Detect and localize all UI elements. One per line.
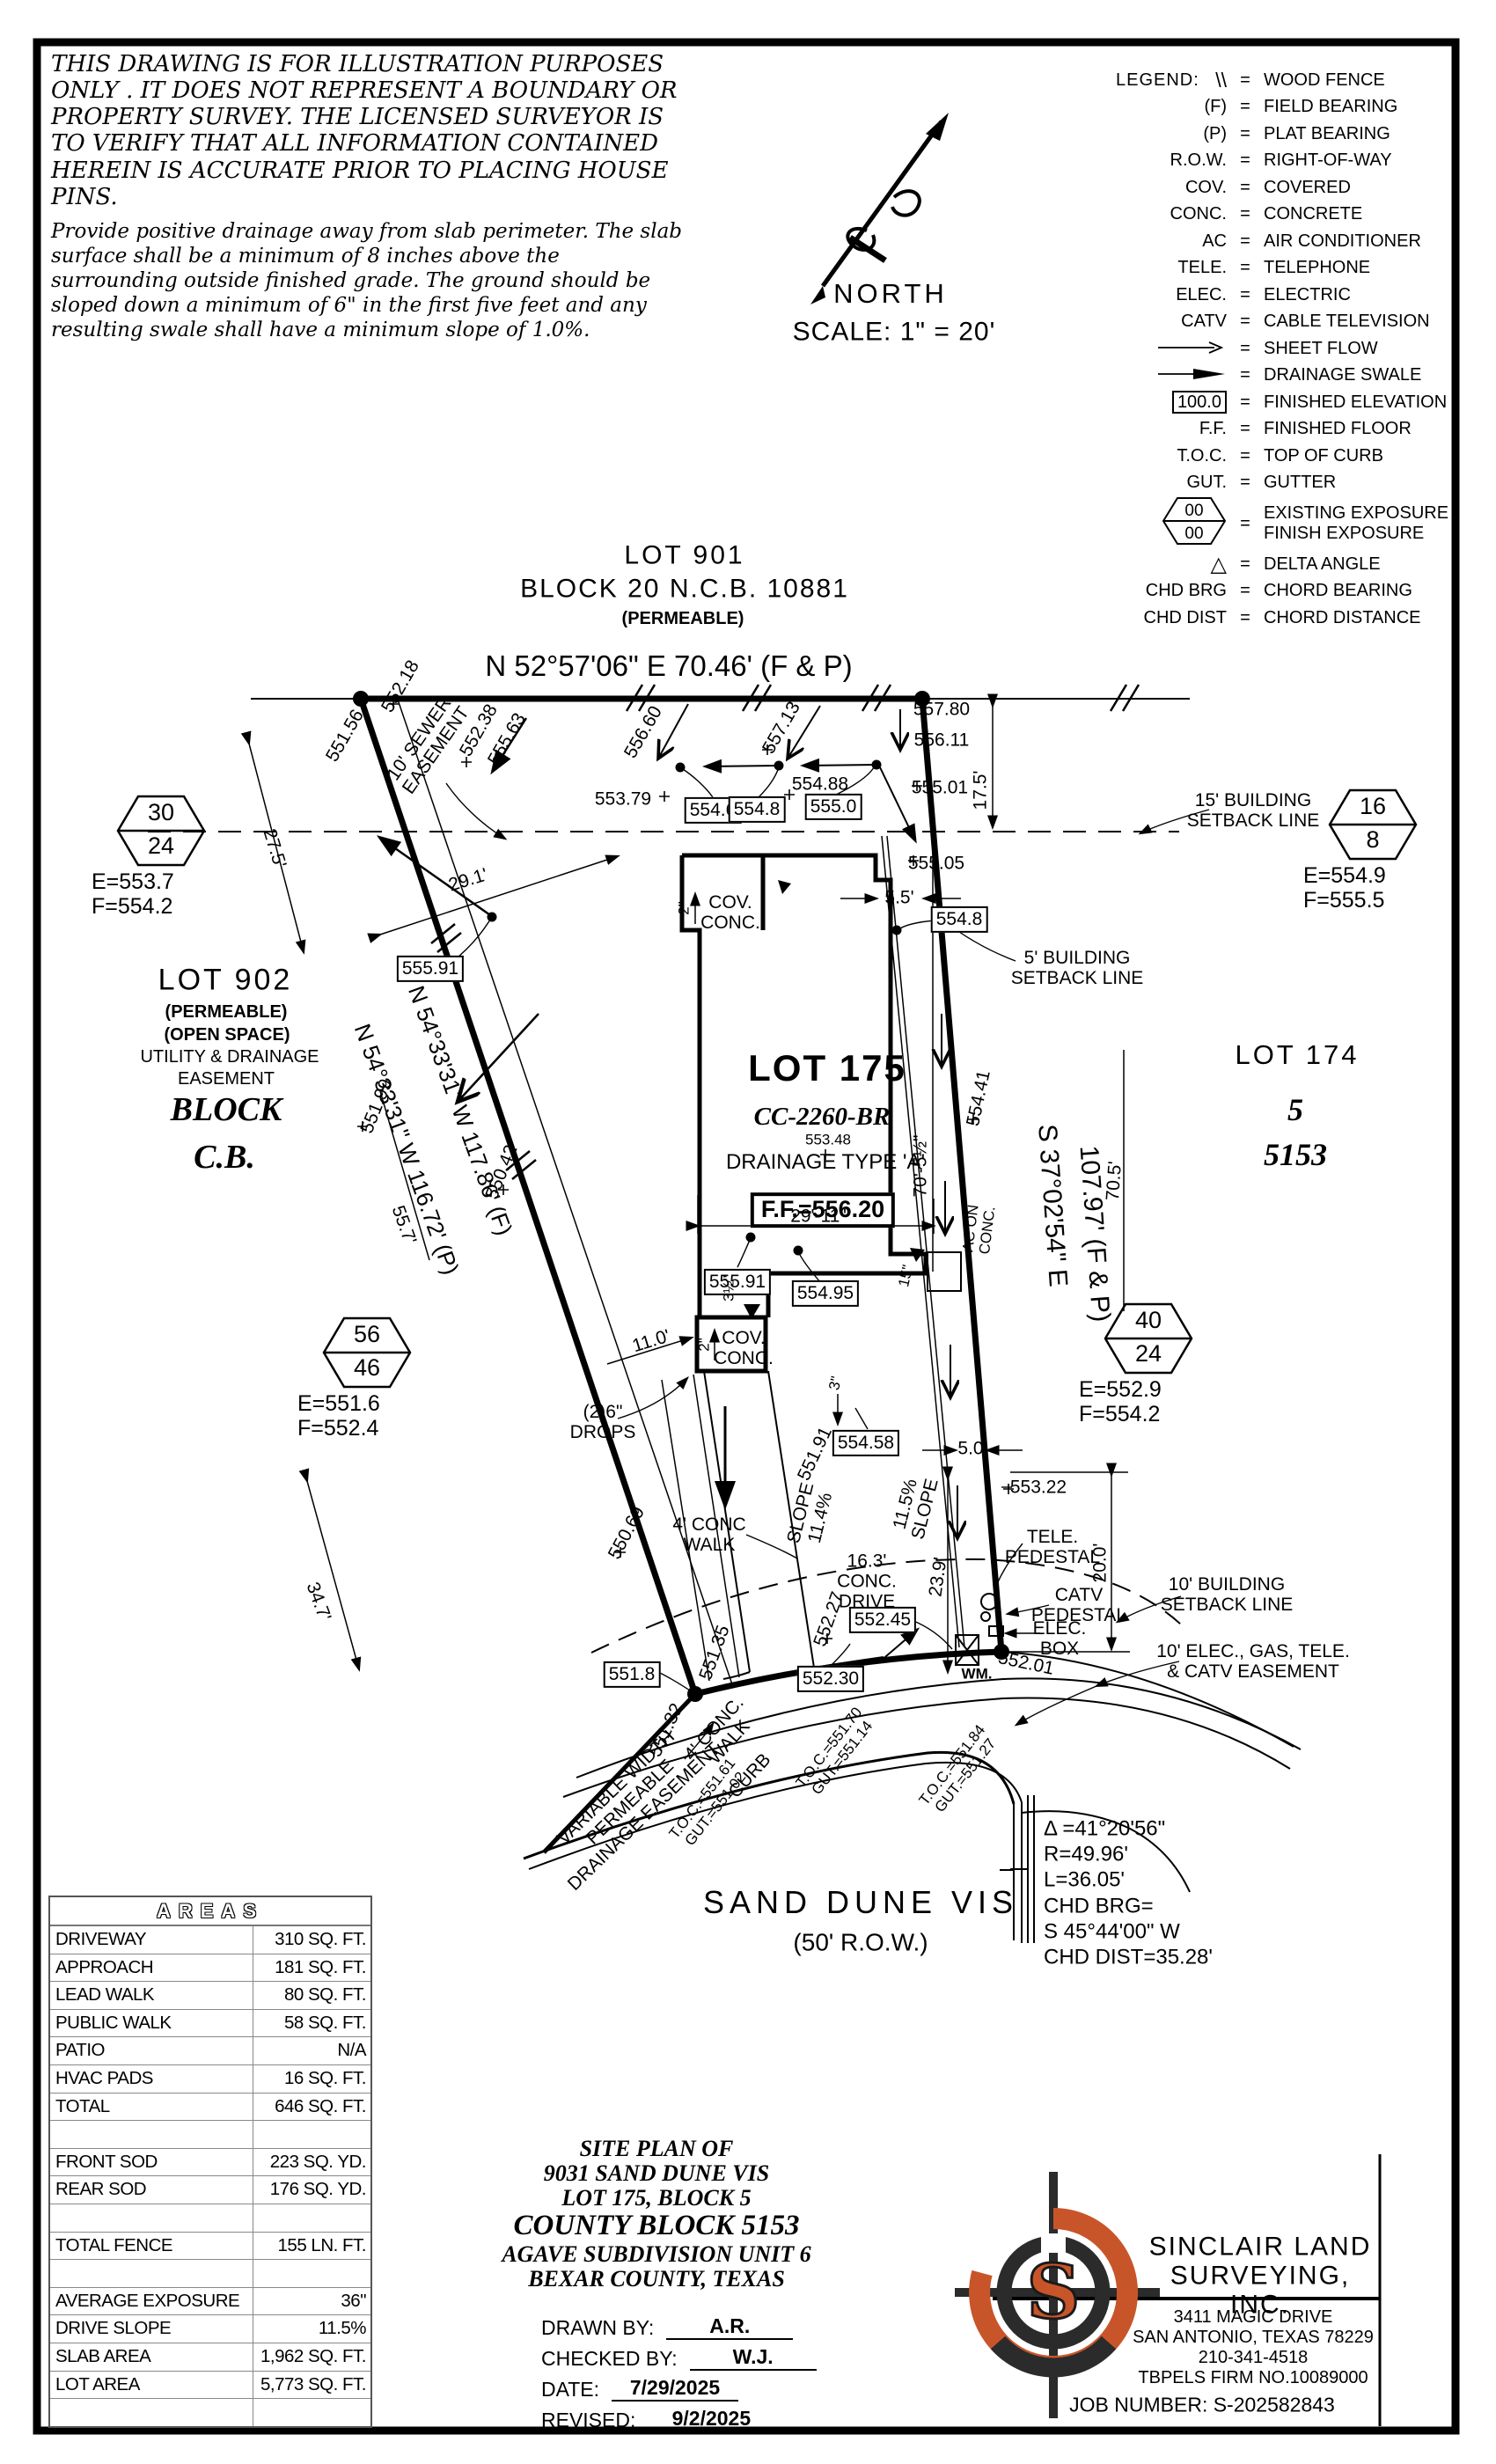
exposure-ef-values: E=553.7 F=554.2 xyxy=(92,869,209,919)
finished-elev-box: 554.8 xyxy=(729,796,786,823)
areas-row-value xyxy=(253,2121,370,2148)
areas-row-label: PUBLIC WALK xyxy=(50,2010,253,2037)
exposure-marker-16-8: 16 8 E=554.9 F=555.5 xyxy=(1324,788,1421,913)
title-block: SITE PLAN OF9031 SAND DUNE VISLOT 175, B… xyxy=(502,2137,810,2292)
exposure-existing: 16 xyxy=(1324,793,1421,820)
areas-row-value: 310 SQ. FT. xyxy=(253,1926,370,1954)
dim-3half-in: 3½" xyxy=(722,1275,738,1302)
areas-row-value: 36" xyxy=(253,2288,370,2315)
drainage-swale-icon xyxy=(1158,368,1227,380)
scale-label: SCALE: 1" = 20' xyxy=(793,318,996,347)
spot-elev: 555.01 xyxy=(912,777,968,797)
legend-description: CABLE TELEVISION xyxy=(1264,312,1430,332)
legend-row: = SHEET FLOW xyxy=(1116,335,1455,363)
legend-description: WOOD FENCE xyxy=(1264,70,1385,91)
areas-table-row: DRIVE SLOPE 11.5% xyxy=(50,2315,370,2343)
dim-5-0: 5.0' xyxy=(957,1438,986,1458)
legend-equals: = xyxy=(1227,70,1264,91)
credit-row: REVISED: 9/2/2025 xyxy=(541,2407,817,2432)
legend-row: TELE. = TELEPHONE xyxy=(1116,255,1455,282)
lot-175-spot-elev: 553.48 xyxy=(805,1133,851,1149)
setback-5-label: 5' BUILDING SETBACK LINE xyxy=(1011,948,1144,988)
legend-symbol xyxy=(1116,339,1227,359)
lot-174-label: LOT 174 xyxy=(1235,1040,1359,1070)
title-block-line: BEXAR COUNTY, TEXAS xyxy=(502,2267,810,2292)
sheet-flow-icon xyxy=(1158,341,1227,354)
legend-symbol: CATV xyxy=(1116,312,1227,332)
areas-row-label: TOTAL xyxy=(50,2094,253,2121)
disclaimer-paragraph-1: THIS DRAWING IS FOR ILLUSTRATION PURPOSE… xyxy=(51,51,685,210)
title-block-lines: SITE PLAN OF9031 SAND DUNE VISLOT 175, B… xyxy=(502,2137,810,2292)
curve-data-line: CHD BRG= xyxy=(1044,1893,1213,1918)
company-name: SINCLAIR LAND SURVEYING, INC. xyxy=(1142,2233,1378,2320)
legend-row: COV. = COVERED xyxy=(1116,174,1455,202)
legend-symbol: TELE. xyxy=(1116,258,1227,278)
legend-description: ELECTRIC xyxy=(1264,285,1351,305)
finished-elev-box: 554.95 xyxy=(792,1280,859,1307)
job-number: JOB NUMBER: S-202582843 xyxy=(1069,2394,1335,2417)
legend-equals: = xyxy=(1227,204,1264,224)
exposure-finish: 24 xyxy=(1100,1340,1197,1368)
legend-row: R.O.W. = RIGHT-OF-WAY xyxy=(1116,148,1455,175)
curve-data: Δ =41°20'56"R=49.96'L=36.05'CHD BRG=S 45… xyxy=(1044,1739,1213,1997)
north-arrow-icon xyxy=(810,113,949,304)
credit-label: DRAWN BY: xyxy=(541,2316,654,2340)
street-name: SAND DUNE VIS xyxy=(703,1885,1018,1920)
dim-17-5: 17.5' xyxy=(970,771,990,810)
finished-elev-box: 555.0 xyxy=(805,794,862,820)
credit-value: A.R. xyxy=(666,2314,793,2340)
areas-row-label: REAR SOD xyxy=(50,2176,253,2204)
tele-pedestal-label: TELE. PEDESTAL xyxy=(1005,1527,1100,1567)
areas-table-row: TOTAL FENCE 155 LN. FT. xyxy=(50,2233,370,2261)
legend-description: GUTTER xyxy=(1264,473,1336,493)
legend-symbol: F.F. xyxy=(1116,419,1227,439)
legend-description: FINISHED FLOOR xyxy=(1264,419,1412,439)
legend-row: AC = AIR CONDITIONER xyxy=(1116,228,1455,255)
legend-row: 100.0 = FINISHED ELEVATION xyxy=(1116,389,1455,416)
areas-row-label: AVERAGE EXPOSURE xyxy=(50,2288,253,2315)
areas-table-row xyxy=(50,2204,370,2233)
areas-table-row: AVERAGE EXPOSURE 36" xyxy=(50,2288,370,2316)
legend-row: (P) = PLAT BEARING xyxy=(1116,121,1455,148)
title-block-line: 9031 SAND DUNE VIS xyxy=(502,2161,810,2186)
areas-row-value xyxy=(253,2204,370,2232)
conc-walk-label-a: 4' CONC WALK xyxy=(672,1514,745,1555)
legend-symbol: (P) xyxy=(1116,124,1227,144)
legend-symbol: CHD DIST xyxy=(1116,608,1227,628)
legend-equals: = xyxy=(1227,392,1264,413)
exposure-marker-30-24: 30 24 E=553.7 F=554.2 xyxy=(113,794,209,919)
areas-row-value xyxy=(253,2260,370,2287)
areas-table-row: DRIVEWAY 310 SQ. FT. xyxy=(50,1926,370,1954)
north-label: NORTH xyxy=(833,279,948,309)
spot-elev: 555.05 xyxy=(908,853,964,873)
spot-elev: 557.80 xyxy=(913,699,970,719)
areas-table-row: PATIO N/A xyxy=(50,2037,370,2065)
areas-table-title: AREAS xyxy=(50,1897,370,1926)
legend-equals: = xyxy=(1227,124,1264,144)
areas-row-label xyxy=(50,2204,253,2232)
legend: LEGEND: \\ = WOOD FENCE xyxy=(1116,67,1455,632)
dim-2in-a: 2" xyxy=(677,901,693,915)
credits-block: DRAWN BY: A.R. CHECKED BY: W.J. DATE: 7/… xyxy=(541,2314,817,2438)
credit-value: 7/29/2025 xyxy=(612,2376,738,2402)
exposure-ef-values: E=551.6 F=552.4 xyxy=(297,1391,415,1441)
areas-table-row: SLAB AREA 1,962 SQ. FT. xyxy=(50,2343,370,2372)
lot-902-label: LOT 902 xyxy=(158,964,293,996)
dim-70-5: 70.5' xyxy=(1103,1161,1126,1201)
legend-description: RIGHT-OF-WAY xyxy=(1264,150,1392,171)
legend-symbol: CONC. xyxy=(1116,204,1227,224)
legend-equals: = xyxy=(1227,339,1264,359)
lot-174-block: 5 xyxy=(1287,1093,1303,1128)
legend-equals: = xyxy=(1227,312,1264,332)
areas-row-label: PATIO xyxy=(50,2037,253,2064)
areas-row-label xyxy=(50,2121,253,2148)
areas-row-label: DRIVEWAY xyxy=(50,1926,253,1954)
spot-elev: 554.88 xyxy=(792,774,848,794)
legend-symbol: R.O.W. xyxy=(1116,150,1227,171)
legend-equals: = xyxy=(1227,178,1264,198)
legend-row: = DRAINAGE SWALE xyxy=(1116,363,1455,390)
legend-row: (F) = FIELD BEARING xyxy=(1116,94,1455,121)
areas-table-row xyxy=(50,2399,370,2426)
title-block-line: AGAVE SUBDIVISION UNIT 6 xyxy=(502,2242,810,2267)
legend-symbol: 00 00 xyxy=(1116,496,1227,551)
areas-row-value: 80 SQ. FT. xyxy=(253,1982,370,2009)
legend-symbol: T.O.C. xyxy=(1116,446,1227,466)
credit-row: CHECKED BY: W.J. xyxy=(541,2345,817,2371)
areas-table-row: LOT AREA 5,773 SQ. FT. xyxy=(50,2372,370,2400)
areas-table-row: PUBLIC WALK 58 SQ. FT. xyxy=(50,2010,370,2038)
title-block-line: COUNTY BLOCK 5153 xyxy=(502,2211,810,2242)
credit-value: W.J. xyxy=(690,2345,817,2371)
legend-description: EXISTING EXPOSURE FINISH EXPOSURE xyxy=(1264,503,1448,544)
exposure-marker-40-24: 40 24 E=552.9 F=554.2 xyxy=(1100,1302,1197,1426)
covered-concrete-lower: COV. CONC. xyxy=(714,1328,774,1368)
legend-row: CHD BRG = CHORD BEARING xyxy=(1116,578,1455,605)
curve-data-line: L=36.05' xyxy=(1044,1867,1213,1893)
lot-901-permeable: (PERMEABLE) xyxy=(622,609,744,628)
legend-row: T.O.C. = TOP OF CURB xyxy=(1116,443,1455,470)
legend-row: CONC. = CONCRETE xyxy=(1116,202,1455,229)
areas-table-row: LEAD WALK 80 SQ. FT. xyxy=(50,1982,370,2010)
credit-rows: DRAWN BY: A.R. CHECKED BY: W.J. DATE: 7/… xyxy=(541,2314,817,2432)
areas-row-value xyxy=(253,2399,370,2426)
legend-equals: = xyxy=(1227,231,1264,252)
areas-table-row xyxy=(50,2121,370,2149)
curve-data-line: S 45°44'00" W xyxy=(1044,1919,1213,1945)
areas-row-label: TOTAL FENCE xyxy=(50,2233,253,2260)
areas-row-label xyxy=(50,2260,253,2287)
finished-elev-box: 555.91 xyxy=(397,956,464,982)
lot-902-block-cb: BLOCK xyxy=(171,1092,282,1129)
water-meter-label: WM. xyxy=(962,1667,993,1683)
legend-row: GUT. = GUTTER xyxy=(1116,470,1455,497)
legend-symbol: AC xyxy=(1116,231,1227,252)
setback-10-label: 10' BUILDING SETBACK LINE xyxy=(1161,1574,1294,1615)
areas-row-label: FRONT SOD xyxy=(50,2149,253,2176)
svg-text:00: 00 xyxy=(1184,502,1203,520)
spot-elev: 556.11 xyxy=(914,730,970,750)
lot-175-drainage-type: DRAINAGE TYPE 'A' xyxy=(726,1151,925,1174)
legend-description: COVERED xyxy=(1264,178,1351,198)
lot-902-cb: C.B. xyxy=(194,1140,255,1177)
lot-902-utility: UTILITY & DRAINAGE xyxy=(140,1047,319,1067)
areas-row-value: 176 SQ. YD. xyxy=(253,2176,370,2204)
legend-symbol: ELEC. xyxy=(1116,285,1227,305)
exposure-finish: 24 xyxy=(113,832,209,860)
easement-10-label: 10' ELEC., GAS, TELE. & CATV EASEMENT xyxy=(1156,1641,1350,1682)
exposure-hex-icon: 00 00 xyxy=(1162,496,1227,546)
lot-902-open-space: (OPEN SPACE) xyxy=(165,1025,290,1045)
finished-elev-box: 551.8 xyxy=(604,1661,661,1688)
areas-row-label: LOT AREA xyxy=(50,2372,253,2399)
areas-row-value: 11.5% xyxy=(253,2315,370,2343)
elec-box-label: ELEC. BOX xyxy=(1033,1618,1087,1659)
legend-title: LEGEND: xyxy=(1116,70,1199,91)
areas-row-value: 58 SQ. FT. xyxy=(253,2010,370,2037)
legend-row: CATV = CABLE TELEVISION xyxy=(1116,309,1455,336)
areas-row-value: 223 SQ. YD. xyxy=(253,2149,370,2176)
legend-symbol: 100.0 xyxy=(1116,392,1227,413)
areas-row-value: 16 SQ. FT. xyxy=(253,2065,370,2093)
legend-description: CONCRETE xyxy=(1264,204,1362,224)
legend-equals: = xyxy=(1227,446,1264,466)
title-block-line: SITE PLAN OF xyxy=(502,2137,810,2161)
legend-symbol: △ xyxy=(1116,552,1227,577)
areas-row-label xyxy=(50,2399,253,2426)
setback-15-label: 15' BUILDING SETBACK LINE xyxy=(1187,790,1320,831)
exposure-existing: 56 xyxy=(319,1321,415,1348)
areas-table-row xyxy=(50,2260,370,2288)
legend-equals: = xyxy=(1227,258,1264,278)
areas-row-label: LEAD WALK xyxy=(50,1982,253,2009)
spot-elev: 553.79 xyxy=(595,788,651,809)
areas-table-row: APPROACH 181 SQ. FT. xyxy=(50,1954,370,1983)
company-logo: S xyxy=(955,2172,1160,2418)
legend-row: F.F. = FINISHED FLOOR xyxy=(1116,416,1455,444)
legend-equals: = xyxy=(1227,150,1264,171)
legend-equals: = xyxy=(1227,514,1264,534)
areas-row-value: 1,962 SQ. FT. xyxy=(253,2343,370,2371)
legend-symbol: (F) xyxy=(1116,97,1227,117)
areas-row-value: 181 SQ. FT. xyxy=(253,1954,370,1982)
finished-elev-box: 554.58 xyxy=(832,1430,899,1456)
areas-table-row: HVAC PADS 16 SQ. FT. xyxy=(50,2065,370,2094)
areas-table: AREAS DRIVEWAY 310 SQ. FT. APPROACH 181 … xyxy=(48,1896,372,2428)
legend-rows: \\ = WOOD FENCE (F) xyxy=(1116,67,1455,632)
lot-902-permeable: (PERMEABLE) xyxy=(165,1002,288,1022)
disclaimer-paragraph-2: Provide positive drainage away from slab… xyxy=(51,219,685,342)
areas-row-value: 5,773 SQ. FT. xyxy=(253,2372,370,2399)
legend-description: PLAT BEARING xyxy=(1264,124,1390,144)
dim-29-11: 29'-11" xyxy=(790,1206,847,1226)
legend-description: SHEET FLOW xyxy=(1264,339,1378,359)
legend-description: TELEPHONE xyxy=(1264,258,1370,278)
legend-equals: = xyxy=(1227,365,1264,385)
lot-901-label: LOT 901 xyxy=(624,541,744,570)
areas-row-label: DRIVE SLOPE xyxy=(50,2315,253,2343)
exposure-ef-values: E=552.9 F=554.2 xyxy=(1079,1377,1197,1426)
lot-902-easement: EASEMENT xyxy=(178,1069,275,1089)
exposure-marker-56-46: 56 46 E=551.6 F=552.4 xyxy=(319,1316,415,1441)
site-plan-sheet: S THIS DRAWING IS FOR ILLUSTRATION PURPO… xyxy=(0,0,1496,2464)
spot-elev: 553.22 xyxy=(1010,1477,1067,1497)
legend-description: FINISHED ELEVATION xyxy=(1264,392,1447,413)
legend-row: 00 00 = EXISTING EXPOSURE FINISH EXPOSUR… xyxy=(1116,496,1455,551)
areas-row-value: N/A xyxy=(253,2037,370,2064)
lot-174-county-block: 5153 xyxy=(1264,1138,1327,1173)
curve-data-lines: Δ =41°20'56"R=49.96'L=36.05'CHD BRG=S 45… xyxy=(1044,1764,1213,1970)
areas-table-row: FRONT SOD 223 SQ. YD. xyxy=(50,2149,370,2177)
credit-label: CHECKED BY: xyxy=(541,2347,678,2371)
svg-text:S: S xyxy=(1027,2248,1081,2336)
legend-description: FIELD BEARING xyxy=(1264,97,1397,117)
legend-equals: = xyxy=(1227,97,1264,117)
legend-equals: = xyxy=(1227,473,1264,493)
legend-description: DRAINAGE SWALE xyxy=(1264,365,1421,385)
legend-equals: = xyxy=(1227,554,1264,575)
flow-arrows xyxy=(380,704,957,1661)
title-block-line: LOT 175, BLOCK 5 xyxy=(502,2186,810,2211)
disclaimer-note: THIS DRAWING IS FOR ILLUSTRATION PURPOSE… xyxy=(51,51,685,342)
credit-row: DRAWN BY: A.R. xyxy=(541,2314,817,2340)
legend-symbol: COV. xyxy=(1116,178,1227,198)
dim-70-5half: 70'-5½" xyxy=(910,1134,930,1197)
legend-description: CHORD BEARING xyxy=(1264,581,1412,601)
areas-row-value: 646 SQ. FT. xyxy=(253,2094,370,2121)
legend-row: ELEC. = ELECTRIC xyxy=(1116,282,1455,309)
exposure-existing: 30 xyxy=(113,799,209,826)
finished-elev-box: 554.8 xyxy=(931,906,988,933)
credit-label: REVISED: xyxy=(541,2409,635,2432)
legend-symbol: GUT. xyxy=(1116,473,1227,493)
exposure-finish: 8 xyxy=(1324,826,1421,854)
legend-row: △ = DELTA ANGLE xyxy=(1116,551,1455,578)
svg-text:00: 00 xyxy=(1184,524,1203,543)
legend-equals: = xyxy=(1227,608,1264,628)
curve-data-line: R=49.96' xyxy=(1044,1842,1213,1867)
areas-table-rows: DRIVEWAY 310 SQ. FT. APPROACH 181 SQ. FT… xyxy=(50,1926,370,2426)
company-address: 3411 MAGIC DRIVE SAN ANTONIO, TEXAS 7822… xyxy=(1133,2307,1374,2388)
bearing-north-line: N 52°57'06" E 70.46' (F & P) xyxy=(485,650,852,682)
exposure-ef-values: E=554.9 F=555.5 xyxy=(1303,863,1421,913)
covered-concrete-upper: COV. CONC. xyxy=(700,892,760,933)
legend-equals: = xyxy=(1227,419,1264,439)
lot-901-block-label: BLOCK 20 N.C.B. 10881 xyxy=(520,575,849,604)
legend-description: DELTA ANGLE xyxy=(1264,554,1381,575)
lot-175-plan-code: CC-2260-BR xyxy=(754,1104,891,1132)
curve-data-line: CHD DIST=35.28' xyxy=(1044,1945,1213,1970)
dim-2in-b: 2" xyxy=(697,1338,714,1352)
areas-row-value: 155 LN. FT. xyxy=(253,2233,370,2260)
curve-data-line: Δ =41°20'56" xyxy=(1044,1815,1213,1841)
ac-on-concrete-label: AC ON CONC. xyxy=(960,1204,999,1256)
areas-row-label: APPROACH xyxy=(50,1954,253,1982)
areas-table-row: REAR SOD 176 SQ. YD. xyxy=(50,2176,370,2204)
credit-value: 9/2/2025 xyxy=(648,2407,774,2432)
street-row: (50' R.O.W.) xyxy=(793,1930,928,1957)
legend-symbol xyxy=(1116,365,1227,385)
areas-table-row: TOTAL 646 SQ. FT. xyxy=(50,2094,370,2122)
legend-equals: = xyxy=(1227,285,1264,305)
credit-label: DATE: xyxy=(541,2378,599,2402)
lot-175-label: LOT 175 xyxy=(748,1048,906,1089)
legend-description: TOP OF CURB xyxy=(1264,446,1383,466)
exposure-existing: 40 xyxy=(1100,1307,1197,1334)
credit-row: DATE: 7/29/2025 xyxy=(541,2376,817,2402)
legend-description: AIR CONDITIONER xyxy=(1264,231,1421,252)
areas-row-label: HVAC PADS xyxy=(50,2065,253,2093)
dim-5-5: 5.5' xyxy=(884,887,913,907)
exposure-finish: 46 xyxy=(319,1354,415,1382)
areas-row-label: SLAB AREA xyxy=(50,2343,253,2371)
legend-description: CHORD DISTANCE xyxy=(1264,608,1421,628)
legend-equals: = xyxy=(1227,581,1264,601)
conc-drive-label: 16.3' CONC. DRIVE xyxy=(837,1551,897,1611)
drops-label: (2)6" DROPS xyxy=(570,1402,636,1442)
legend-symbol: CHD BRG xyxy=(1116,581,1227,601)
legend-row: CHD DIST = CHORD DISTANCE xyxy=(1116,605,1455,632)
finished-elev-box: 552.30 xyxy=(797,1666,864,1692)
